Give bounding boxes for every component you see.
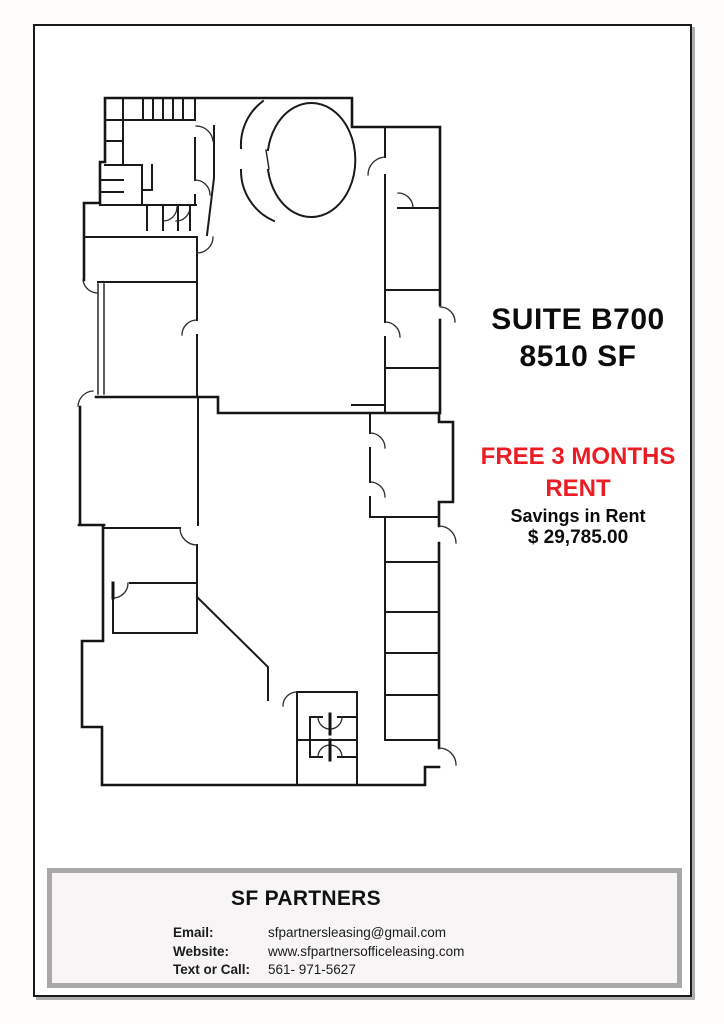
broker-info-box: SF PARTNERS Email: sfpartnersleasing@gma… — [47, 868, 682, 988]
contact-row-website: Website: www.sfpartnersofficeleasing.com — [173, 943, 464, 962]
savings-amount: $ 29,785.00 — [450, 527, 706, 548]
promo-offer-line1: FREE 3 MONTHS — [450, 441, 706, 473]
website-label: Website: — [173, 943, 268, 962]
curved-wall — [241, 101, 355, 221]
email-value: sfpartnersleasing@gmail.com — [268, 924, 446, 943]
website-value: www.sfpartnersofficeleasing.com — [268, 943, 464, 962]
floor-plan-outer-walls — [79, 98, 453, 785]
floor-plan-interior-walls — [85, 98, 440, 785]
suite-number: SUITE B700 — [450, 301, 706, 338]
contact-list: Email: sfpartnersleasing@gmail.com Websi… — [173, 924, 464, 980]
company-name: SF PARTNERS — [52, 887, 560, 911]
promo-offer-line2: RENT — [450, 473, 706, 505]
contact-row-email: Email: sfpartnersleasing@gmail.com — [173, 924, 464, 943]
contact-row-phone: Text or Call: 561- 971-5627 — [173, 961, 464, 980]
savings-label: Savings in Rent — [450, 506, 706, 527]
phone-value: 561- 971-5627 — [268, 961, 356, 980]
suite-size: 8510 SF — [450, 338, 706, 375]
savings-block: Savings in Rent $ 29,785.00 — [450, 506, 706, 548]
phone-label: Text or Call: — [173, 961, 268, 980]
promo-offer: FREE 3 MONTHS RENT — [450, 441, 706, 505]
flyer-page: SUITE B700 8510 SF FREE 3 MONTHS RENT Sa… — [0, 0, 724, 1024]
email-label: Email: — [173, 924, 268, 943]
suite-heading: SUITE B700 8510 SF — [450, 301, 706, 375]
